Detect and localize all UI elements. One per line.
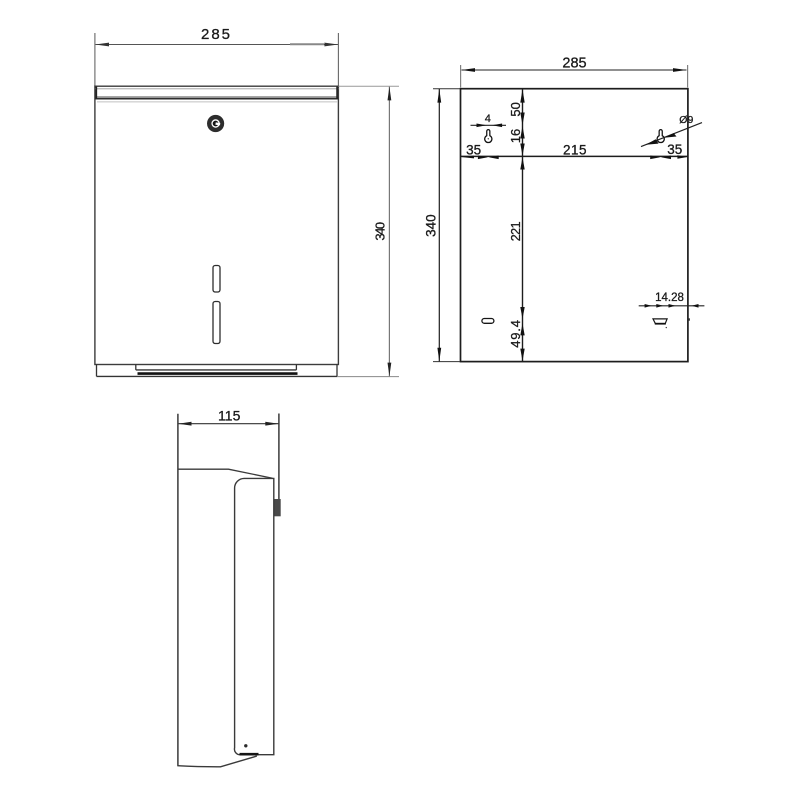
svg-text:50: 50 (508, 102, 523, 116)
svg-text:35: 35 (667, 142, 682, 157)
svg-text:221: 221 (509, 221, 523, 241)
svg-text:14.28: 14.28 (655, 292, 684, 304)
svg-text:35: 35 (466, 143, 481, 158)
svg-text:49.4: 49.4 (508, 319, 523, 348)
svg-text:215: 215 (563, 142, 587, 157)
svg-text:16: 16 (508, 129, 523, 143)
svg-text:285: 285 (562, 56, 586, 72)
svg-text:4: 4 (485, 113, 491, 125)
svg-text:115: 115 (218, 407, 241, 423)
svg-text:Ø9: Ø9 (679, 114, 693, 126)
svg-text:340: 340 (372, 222, 387, 240)
svg-text:340: 340 (423, 214, 438, 237)
svg-text:285: 285 (201, 26, 232, 43)
